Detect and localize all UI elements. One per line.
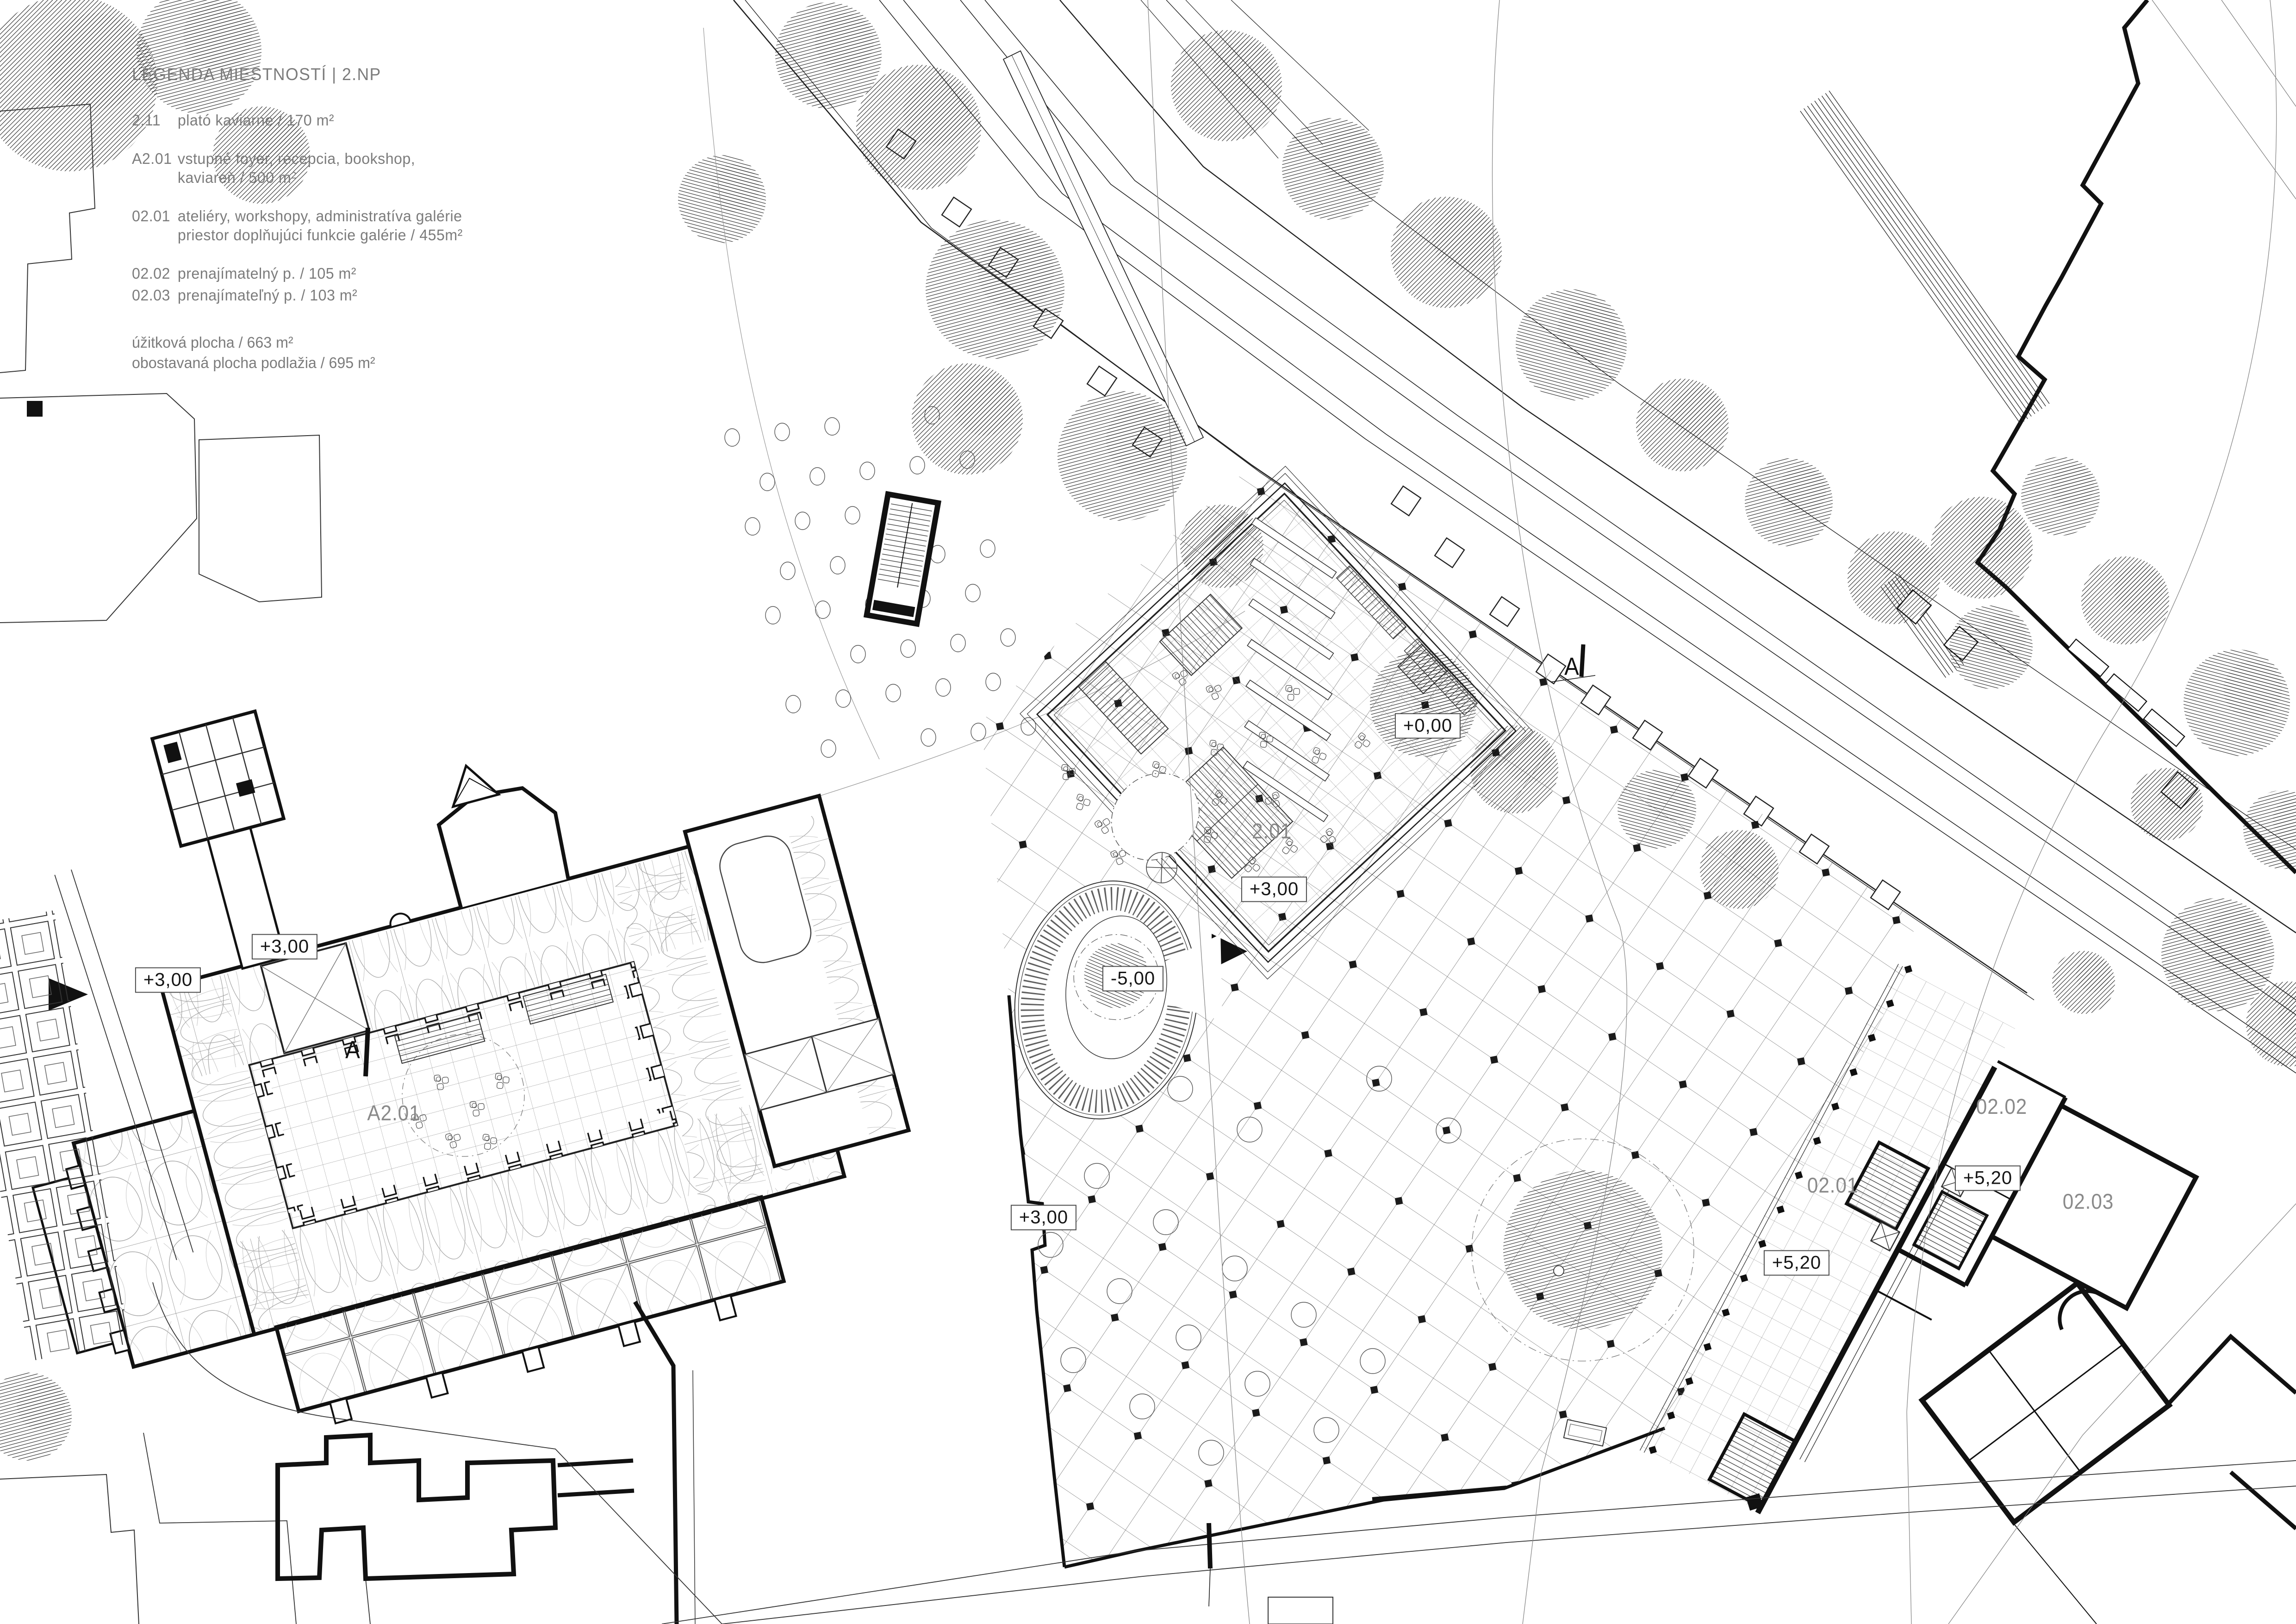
level-courtyard: +3,00 — [252, 934, 317, 960]
room-label-02-03: 02.03 — [2063, 1189, 2114, 1214]
room-label-A2-01: A2.01 — [367, 1100, 420, 1125]
room-label-02-02: 02.02 — [1976, 1094, 2028, 1119]
level-bar-west: +5,20 — [1764, 1250, 1829, 1276]
level-pavilion: +0,00 — [1395, 713, 1461, 739]
level-west-wing: +3,00 — [135, 968, 201, 993]
site-plan-sheet: LEGENDA MIESTNOSTÍ | 2.NP 2.11plató kavi… — [0, 0, 2296, 1624]
level-bar-east: +5,20 — [1955, 1166, 2021, 1191]
plan-labels-layer: A2.012.0102.0102.0202.03+3,00+3,00+3,00+… — [0, 0, 2296, 1624]
room-label-02-01: 02.01 — [1807, 1173, 1859, 1198]
room-label-2-01: 2.01 — [1252, 818, 1292, 843]
level-amphitheatre: -5,00 — [1102, 966, 1164, 992]
section-mark-A-east: A — [1564, 652, 1579, 681]
section-mark-A-west: A — [345, 1036, 360, 1064]
level-plaza: +3,00 — [1011, 1205, 1076, 1230]
level-pavilion-terrace: +3,00 — [1241, 877, 1307, 902]
